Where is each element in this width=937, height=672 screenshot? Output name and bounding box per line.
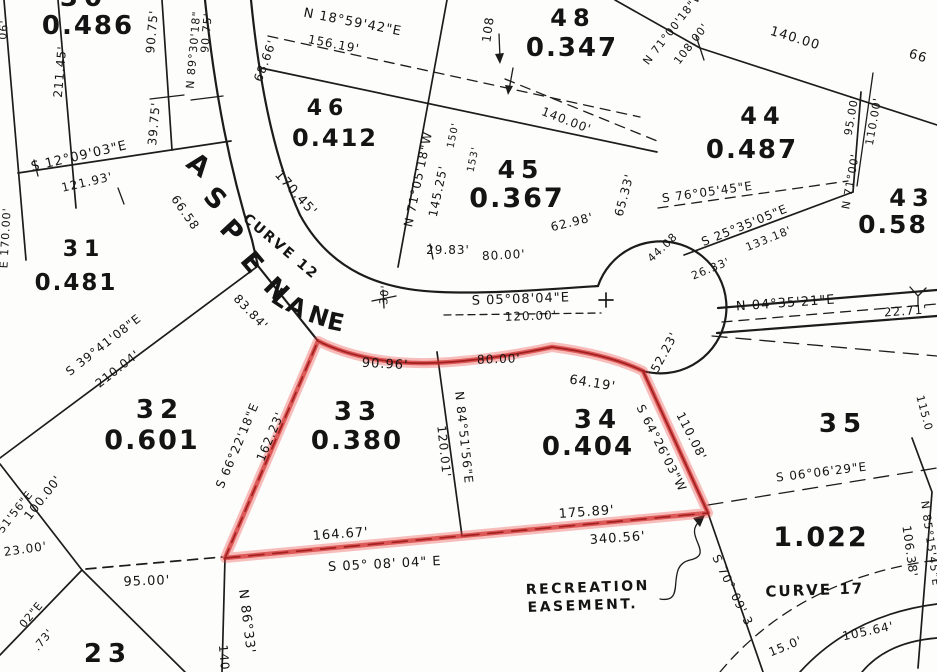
- road-edge-right: [717, 316, 937, 333]
- label-acr: 0.58: [858, 210, 928, 239]
- label-brg: S 12°09'03"E: [30, 138, 129, 175]
- label-lot: 33: [334, 397, 382, 427]
- lot-line-dashed: [712, 336, 937, 356]
- label-lot: 45: [498, 155, 545, 184]
- label-acr: 0.481: [35, 270, 118, 296]
- label-lot: 32: [136, 395, 184, 425]
- label-crv: CURVE 17: [765, 579, 864, 600]
- label-lot: 31: [63, 237, 106, 262]
- label-acr: 0.380: [311, 426, 403, 456]
- label-st: A: [180, 147, 216, 184]
- label-dst: 145.25': [426, 164, 451, 218]
- label-dst: 64.19': [568, 372, 617, 394]
- label-brg: N 04°35'21"E: [735, 293, 836, 315]
- label-dst: 140.00: [768, 24, 822, 53]
- label-dst: 115.0: [913, 394, 935, 433]
- label-dst: 39.75': [145, 101, 163, 146]
- lot-line: [162, 0, 172, 150]
- label-dst: 90.75': [198, 12, 214, 53]
- label-frg: 06': [0, 19, 11, 40]
- label-dst: 170.45': [271, 168, 320, 220]
- curve-17-arc: [862, 638, 937, 672]
- label-dst: 340.56': [589, 529, 646, 548]
- label-dst: 120.01': [434, 425, 453, 478]
- label-frg: .73': [30, 626, 56, 653]
- label-acr: 0.412: [292, 124, 378, 152]
- label-dst: 29.83': [426, 243, 470, 257]
- label-dst: 95.00': [123, 573, 170, 590]
- label-dst: 90.96': [361, 356, 409, 373]
- label-dst: 65.33': [612, 172, 637, 218]
- label-dst: 26.33': [689, 255, 731, 282]
- label-dst: 30': [377, 284, 392, 305]
- label-brg: S 76°05'45"E: [661, 179, 754, 206]
- label-brg: S 05° 08' 04" E: [328, 554, 442, 575]
- lot-line: [700, 48, 937, 125]
- label-dst: 120.00': [504, 308, 557, 324]
- label-lot: 46: [307, 96, 350, 121]
- lot-line-dashed: [86, 557, 222, 569]
- label-dst: 66.58: [168, 193, 202, 233]
- label-acr: 0.367: [469, 183, 564, 214]
- label-st: S: [197, 181, 232, 217]
- label-dst: 90.75': [143, 9, 161, 54]
- label-dst: 140.00': [540, 104, 594, 136]
- tick-mark: [150, 95, 184, 99]
- label-dst: 150': [445, 122, 461, 150]
- label-dst: 106.38': [899, 525, 920, 579]
- label-frg: 02"E: [17, 599, 46, 630]
- label-acr: 0.601: [104, 425, 199, 456]
- label-dst: 44.08: [645, 230, 680, 265]
- map-labels: 300.48690.75'39.75'N 89°30'18"90.75'68.6…: [0, 0, 937, 671]
- label-dst: 108: [479, 16, 496, 44]
- label-dst: 156.19': [307, 32, 361, 56]
- label-acr: 0.486: [42, 11, 134, 41]
- label-acr: 0.404: [542, 432, 634, 462]
- label-acr: 1.022: [773, 522, 868, 553]
- label-dst: 52.23': [648, 330, 681, 375]
- label-dst: 23.00': [3, 539, 48, 559]
- tick-mark: [118, 188, 124, 204]
- label-brg: S 70° 09' 3: [709, 552, 756, 628]
- label-dst: 15.0': [767, 633, 805, 659]
- label-lot: 34: [574, 405, 622, 435]
- label-dst: 110.00': [863, 96, 884, 146]
- leader-arrow: [660, 521, 700, 599]
- label-dst: 121.93': [60, 169, 114, 194]
- label-lot: 48: [550, 4, 595, 32]
- map-lines: [0, 0, 937, 672]
- label-brg: S 05°08'04"E: [472, 290, 571, 308]
- arrowhead: [495, 53, 504, 64]
- label-ft: EASEMENT.: [527, 596, 638, 616]
- label-dst: 153': [465, 146, 481, 174]
- label-lot: 43: [889, 184, 934, 212]
- label-dst: 140: [216, 644, 232, 671]
- label-dst: 80.00': [477, 351, 521, 367]
- plat-map: 300.48690.75'39.75'N 89°30'18"90.75'68.6…: [0, 0, 937, 672]
- label-brg: S 39°41'08"E: [63, 311, 144, 378]
- label-acr: 0.487: [706, 135, 798, 165]
- label-acr: 0.347: [526, 33, 618, 63]
- label-lot: 44: [740, 102, 785, 130]
- label-dst: 66: [907, 47, 929, 67]
- label-ft: RECREATION: [526, 578, 651, 598]
- cul-de-sac-center-cross: [599, 293, 613, 307]
- label-brg: N 84°51'56"E: [452, 391, 476, 485]
- label-lot: 35: [819, 409, 867, 439]
- arrowhead: [505, 85, 513, 95]
- label-brg: N 86°33': [235, 588, 258, 654]
- label-dst: 80.00': [482, 247, 526, 263]
- label-brg: E 170.00': [0, 207, 14, 269]
- label-lot: 23: [84, 639, 132, 669]
